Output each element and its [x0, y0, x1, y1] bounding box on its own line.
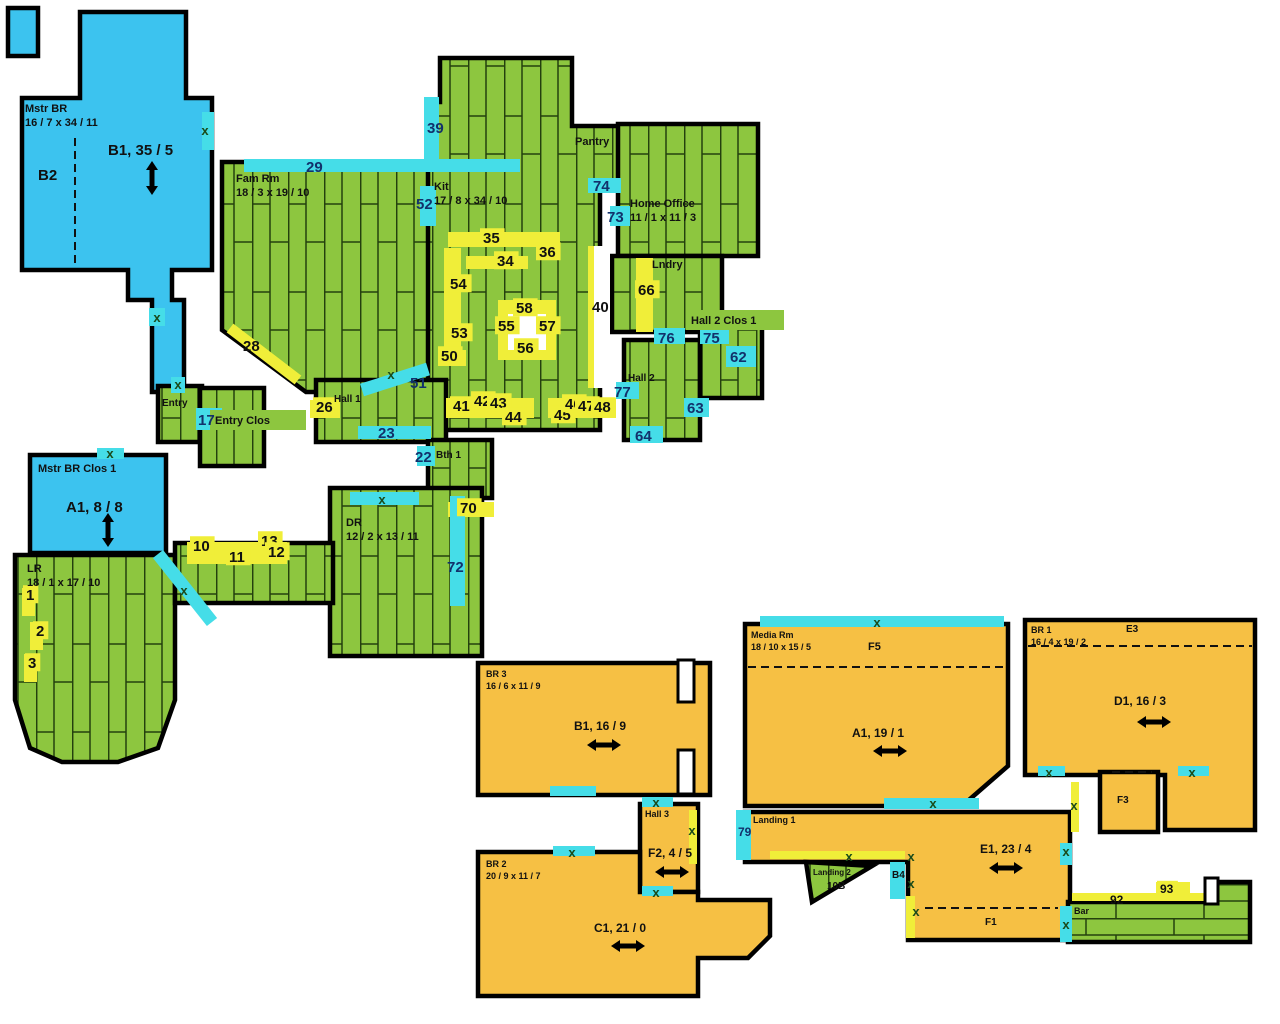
zone-label: E3 [1126, 624, 1139, 635]
x-mark: x [1062, 917, 1070, 932]
seam-number[interactable]: 26 [316, 399, 333, 416]
seam-number[interactable]: 51 [410, 375, 427, 392]
seam-number[interactable]: 72 [447, 559, 464, 576]
seam-strip-cyan [760, 616, 1004, 627]
room-label: Fam Rm [236, 173, 280, 185]
room-label: BR 1 [1031, 625, 1052, 635]
seam-number[interactable]: 35 [483, 230, 500, 247]
seam-number[interactable]: 48 [594, 399, 611, 416]
room-dims: 20 / 9 x 11 / 7 [486, 871, 541, 881]
x-mark: x [652, 795, 660, 810]
seam-number[interactable]: 93 [1160, 882, 1174, 896]
seam-strip-cyan [244, 159, 520, 172]
x-mark: x [1188, 765, 1196, 780]
x-mark: x [912, 904, 920, 919]
seam-number[interactable]: 63 [687, 400, 704, 417]
room-label: Home Office [630, 198, 695, 210]
room-dims: 17 / 8 x 34 / 10 [434, 195, 507, 207]
seam-number[interactable]: 64 [635, 428, 652, 445]
label-box-text: Entry Clos [215, 415, 270, 427]
seam-number[interactable]: 3 [28, 655, 36, 672]
seam-number[interactable]: 73 [607, 209, 624, 226]
x-mark: x [929, 796, 937, 811]
room-label: BR 3 [486, 669, 507, 679]
seam-number[interactable]: 79 [738, 825, 752, 839]
x-mark: x [873, 615, 881, 630]
cutout [678, 660, 694, 702]
label-box-text: Hall 2 Clos 1 [691, 315, 756, 327]
seam-number[interactable]: 2 [36, 623, 44, 640]
seam-number[interactable]: 76 [658, 330, 675, 347]
x-mark: x [180, 583, 188, 598]
room-label: Hall 2 [628, 373, 655, 384]
seam-number[interactable]: 53 [451, 325, 468, 342]
x-mark: x [1062, 844, 1070, 859]
room-dims: 18 / 3 x 19 / 10 [236, 187, 309, 199]
x-mark: x [907, 876, 915, 891]
room-dims: 16 / 4 x 19 / 2 [1031, 637, 1086, 647]
seam-number[interactable]: 11 [229, 549, 245, 566]
zone-label: A1, 19 / 1 [852, 726, 904, 740]
seam-strip-cyan [550, 786, 596, 796]
room-label: Hall 1 [334, 394, 361, 405]
zone-label: C1, 21 / 0 [594, 921, 646, 935]
room-dims: 18 / 1 x 17 / 10 [27, 577, 100, 589]
x-mark: x [652, 885, 660, 900]
cutout [678, 750, 694, 794]
seam-number[interactable]: 92 [1110, 893, 1124, 907]
room-dims: 18 / 10 x 15 / 5 [751, 642, 811, 652]
room-label: Kit [434, 181, 449, 193]
zone-label: F2, 4 / 5 [648, 846, 692, 860]
zone-label: B2 [38, 167, 57, 184]
x-mark: x [153, 310, 161, 325]
seam-number[interactable]: B4 [892, 870, 905, 881]
room-entry[interactable] [158, 386, 202, 442]
seam-number[interactable]: 17 [198, 412, 215, 429]
room-label: Entry [162, 398, 188, 409]
zone-label: B1, 16 / 9 [574, 719, 626, 733]
zone-label: A1, 8 / 8 [66, 499, 123, 516]
room-dims: 11 / 1 x 11 / 3 [630, 212, 696, 224]
room-label: Mstr BR [25, 103, 67, 115]
room-dims: 16 / 6 x 11 / 9 [486, 681, 541, 691]
x-mark: x [1045, 765, 1053, 780]
seam-number[interactable]: 40 [592, 299, 609, 316]
x-mark: x [688, 823, 696, 838]
seam-number[interactable]: 70 [460, 500, 477, 517]
zone-label: Pantry [575, 136, 610, 148]
seam-number[interactable]: 29 [306, 159, 323, 176]
seam-number[interactable]: 54 [450, 276, 467, 293]
seam-number[interactable]: 22 [415, 449, 432, 466]
room-label: Hall 3 [645, 809, 669, 819]
room-label: Landing 1 [753, 815, 796, 825]
floor-plan-stage: Entry ClosHall 2 Clos 129395235343654535… [0, 0, 1280, 1024]
x-mark: x [845, 849, 853, 864]
room-label: DR [346, 517, 362, 529]
x-mark: x [1070, 798, 1078, 813]
room-label: Media Rm [751, 630, 794, 640]
x-mark: x [568, 845, 576, 860]
seam-number[interactable]: 39 [427, 120, 444, 137]
seam-number[interactable]: 62 [730, 349, 747, 366]
zone-label: F3 [1117, 795, 1129, 806]
zone-label: E1, 23 / 4 [980, 842, 1032, 856]
room-mstr-br[interactable] [22, 12, 212, 392]
seam-number[interactable]: 50 [441, 348, 458, 365]
zone-label: F1 [985, 917, 997, 928]
seam-number[interactable]: 10 [193, 538, 210, 555]
seam-number[interactable]: 12 [268, 544, 285, 561]
zone-label: D1, 16 / 3 [1114, 694, 1166, 708]
seam-number[interactable]: 41 [453, 398, 470, 415]
cutout [594, 246, 610, 388]
seam-number[interactable]: 36 [539, 244, 556, 261]
room-label: Bth 1 [436, 450, 461, 461]
zone-label: 10B [827, 881, 845, 892]
seam-strip-yellow [588, 246, 595, 388]
seam-number[interactable]: 66 [638, 282, 655, 299]
x-mark: x [174, 377, 182, 392]
room-label: BR 2 [486, 859, 507, 869]
x-mark: x [378, 492, 386, 507]
room-corner-square[interactable] [8, 8, 38, 56]
zone-label: F5 [868, 641, 881, 653]
seam-number[interactable]: 75 [703, 330, 720, 347]
zone-label: B1, 35 / 5 [108, 142, 173, 159]
cutout [1205, 878, 1218, 904]
floor-plan-svg: Entry ClosHall 2 Clos 129395235343654535… [0, 0, 1280, 1024]
room-dims: 12 / 2 x 13 / 11 [346, 531, 419, 543]
room-label: Bar [1074, 906, 1090, 916]
seam-number[interactable]: 74 [593, 178, 610, 195]
seam-number[interactable]: 52 [416, 196, 433, 213]
x-mark: x [106, 446, 114, 461]
room-home-office[interactable] [618, 124, 758, 256]
room-label: Lndry [652, 259, 683, 271]
x-mark: x [201, 123, 209, 138]
seam-number[interactable]: 1 [26, 587, 34, 604]
seam-number[interactable]: 23 [378, 425, 395, 442]
seam-number[interactable]: 58 [516, 300, 533, 317]
seam-number[interactable]: 57 [539, 318, 556, 335]
seam-number[interactable]: 55 [498, 318, 515, 335]
room-f3-clos[interactable] [1100, 772, 1158, 832]
x-mark: x [387, 367, 395, 382]
seam-number[interactable]: 56 [517, 340, 534, 357]
seam-strip-yellow [1072, 893, 1204, 901]
room-dims: 16 / 7 x 34 / 11 [25, 117, 98, 129]
room-label: Mstr BR Clos 1 [38, 463, 116, 475]
room-label: Landing 2 [813, 868, 851, 877]
room-label: LR [27, 563, 42, 575]
seam-strip-yellow [770, 851, 905, 859]
seam-number[interactable]: 34 [497, 253, 514, 270]
seam-number[interactable]: 28 [243, 338, 260, 355]
seam-number[interactable]: 44 [505, 409, 522, 426]
seam-number[interactable]: 77 [614, 384, 631, 401]
x-mark: x [907, 849, 915, 864]
